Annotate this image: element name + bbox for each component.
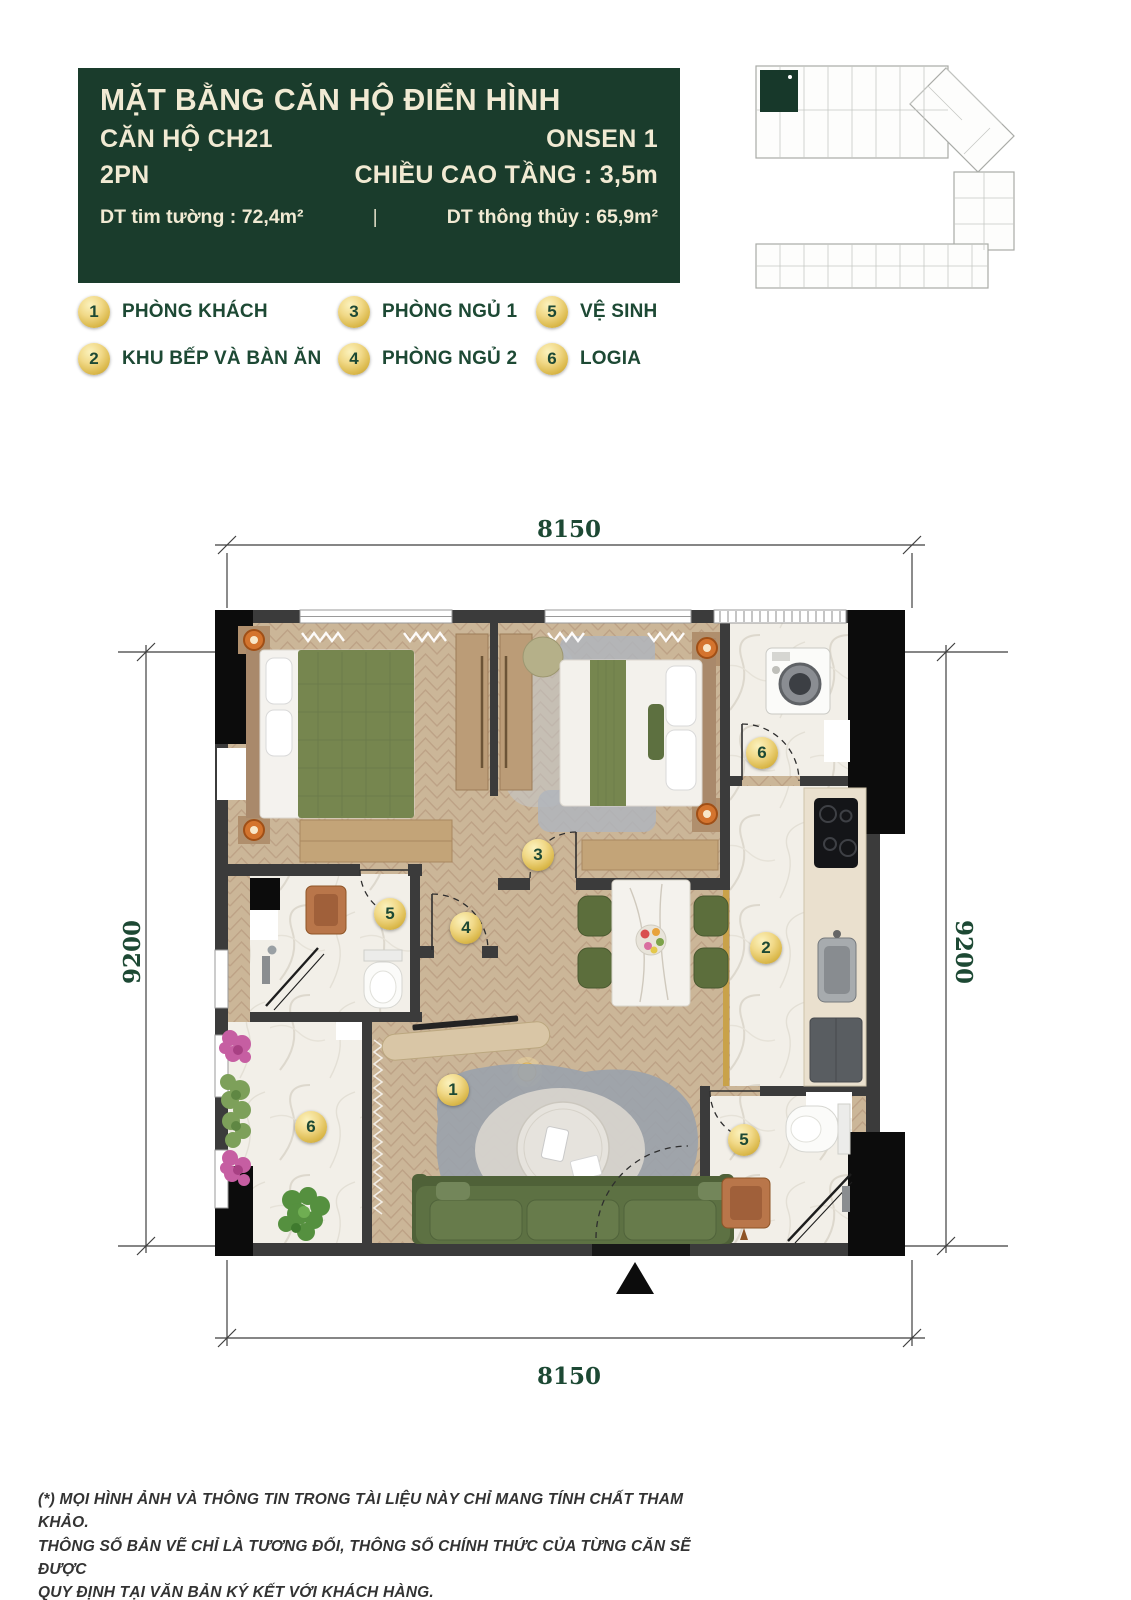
legend-badge-5: 5 — [536, 296, 568, 328]
legend-item-wc: 5 VỆ SINH — [536, 296, 686, 328]
floor-plan: 8150 8150 9200 9200 1 2 3 4 5 5 6 6 — [0, 470, 1131, 1400]
legend-badge-6: 6 — [536, 343, 568, 375]
dim-right: 9200 — [950, 920, 977, 984]
legend-item-kitchen: 2 KHU BẾP VÀ BÀN ĂN — [78, 343, 338, 375]
plan-badge-bedroom2: 4 — [450, 912, 482, 944]
page-title: MẶT BẰNG CĂN HỘ ĐIỂN HÌNH — [100, 82, 641, 118]
unit-code: CĂN HỘ CH21 — [100, 125, 273, 154]
area-wall: DT tim tường : 72,4m² — [100, 206, 304, 229]
entrance-arrow — [616, 1262, 654, 1294]
legend-item-bedroom1: 3 PHÒNG NGỦ 1 — [338, 296, 536, 328]
legend-badge-4: 4 — [338, 343, 370, 375]
legend-item-bedroom2: 4 PHÒNG NGỦ 2 — [338, 343, 536, 375]
bedroom-count: 2PN — [100, 161, 150, 190]
dim-top: 8150 — [537, 516, 601, 543]
plan-badge-logia-top: 6 — [746, 737, 778, 769]
dim-bottom: 8150 — [537, 1363, 601, 1390]
area-clear: DT thông thủy : 65,9m² — [447, 206, 658, 229]
brochure-page: MẶT BẰNG CĂN HỘ ĐIỂN HÌNH CĂN HỘ CH21 ON… — [0, 0, 1131, 1600]
dim-left: 9200 — [119, 920, 146, 984]
plan-badge-bedroom1: 3 — [522, 839, 554, 871]
plan-badge-kitchen: 2 — [750, 932, 782, 964]
plan-badge-logia-bottom: 6 — [295, 1111, 327, 1143]
floor-height: CHIỀU CAO TẦNG : 3,5m — [354, 161, 658, 190]
legend-badge-1: 1 — [78, 296, 110, 328]
plan-badge-living: 1 — [437, 1074, 469, 1106]
disclaimer: (*) MỌI HÌNH ẢNH VÀ THÔNG TIN TRONG TÀI … — [38, 1488, 718, 1600]
plan-badge-bathroom1: 5 — [374, 898, 406, 930]
legend: 1 PHÒNG KHÁCH 3 PHÒNG NGỦ 1 5 VỆ SINH 2 … — [78, 296, 686, 375]
building-key-plan — [740, 60, 1040, 292]
area-separator: | — [373, 206, 378, 229]
legend-badge-2: 2 — [78, 343, 110, 375]
header-box: MẶT BẰNG CĂN HỘ ĐIỂN HÌNH CĂN HỘ CH21 ON… — [78, 68, 680, 283]
washing-machine — [766, 648, 830, 714]
legend-item-logia: 6 LOGIA — [536, 343, 686, 375]
highlighted-unit — [760, 70, 798, 112]
legend-badge-3: 3 — [338, 296, 370, 328]
project-name: ONSEN 1 — [546, 125, 658, 154]
plan-badge-bathroom2: 5 — [728, 1124, 760, 1156]
floor-plan-drawing: 8150 8150 9200 9200 — [0, 470, 1131, 1400]
kitchen-furniture — [804, 788, 866, 1086]
legend-item-living: 1 PHÒNG KHÁCH — [78, 296, 338, 328]
